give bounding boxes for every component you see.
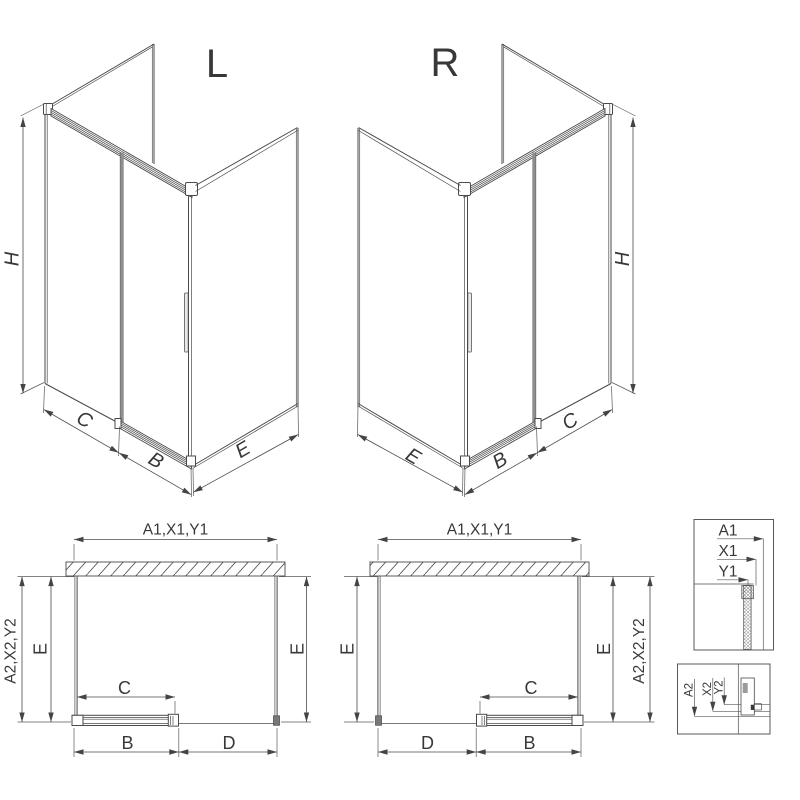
front-fixed-glass	[538, 114, 612, 423]
door-end-profile	[477, 714, 487, 726]
detail-box-adjustment-a2: A2 X2 Y2	[678, 664, 771, 734]
dim-label-e-left-plan-left: E	[31, 643, 51, 655]
left-side-panel	[48, 44, 154, 164]
shower-enclosure-technical-drawing: L	[0, 0, 800, 800]
bottom-corner-bracket	[187, 456, 196, 466]
profile-collar	[742, 586, 754, 599]
dim-label-h-right: H	[612, 251, 634, 266]
sliding-door-plan	[72, 714, 179, 726]
variant-label-right: R	[431, 41, 460, 85]
dim-label-a2-plan-left: A2,X2,Y2	[3, 618, 20, 684]
detail-frame	[678, 664, 771, 734]
right-side-glass-panel	[502, 44, 608, 164]
dim-label-e-right-plan-left: E	[287, 643, 307, 655]
dim-label-e-left-plan-right: E	[337, 643, 357, 655]
diagram-canvas: L	[0, 0, 800, 800]
detail-label-y1: Y1	[719, 564, 738, 581]
dim-label-a1-plan-left: A1,X1,Y1	[143, 522, 209, 539]
dim-label-a1-plan-right: A1,X1,Y1	[447, 522, 513, 539]
dim-label-b-plan-right: B	[523, 733, 535, 753]
dim-label-c-plan-left: C	[118, 678, 131, 698]
front-fixed-glass	[45, 114, 119, 423]
dimensions-right-view: H C B E	[358, 105, 636, 498]
detail-label-a1: A1	[719, 523, 738, 540]
dim-label-a2-plan-right: A2,X2,Y2	[631, 618, 648, 684]
bottom-corner-bracket	[461, 456, 470, 466]
sliding-door-panel	[468, 153, 536, 425]
dim-label-d-plan-right: D	[421, 733, 434, 753]
wall-hatched	[66, 562, 285, 576]
door-handle	[185, 293, 189, 352]
detail-box-adjustment-a1: A1 X1 Y1	[694, 520, 774, 651]
iso-view-left-variant: L	[2, 42, 299, 497]
dim-label-b-plan-left: B	[121, 733, 133, 753]
variant-label-left: L	[206, 42, 228, 86]
detail-label-a2: A2	[684, 683, 696, 697]
detail-label-x1: X1	[719, 543, 738, 560]
panel-end-cap	[274, 716, 280, 726]
dim-label-e-right: E	[402, 444, 425, 470]
bottom-rail-end-cap	[115, 419, 121, 429]
dim-label-c-right: C	[558, 408, 582, 435]
detail-label-x2: X2	[702, 682, 714, 696]
glass-panels-plan	[74, 576, 280, 725]
door-end-profile	[168, 714, 178, 726]
iso-view-right-variant: R	[358, 41, 636, 497]
bottom-rail-end-cap	[535, 419, 541, 429]
rail-corner-bracket	[459, 183, 471, 196]
left-return-panel	[358, 128, 464, 469]
dim-label-d-plan-left: D	[223, 733, 236, 753]
plan-view-right-variant: A1,X1,Y1 C D B	[337, 522, 654, 758]
right-side-panel	[193, 128, 299, 469]
panel-end-cap	[376, 716, 382, 726]
dim-label-h-left: H	[2, 251, 24, 266]
sliding-door-plan	[477, 714, 584, 726]
sliding-door-panel	[120, 153, 188, 425]
dim-label-c-left: C	[72, 407, 96, 434]
wall-hatched	[370, 562, 589, 576]
plan-view-left-variant: A1,X1,Y1 C B D	[3, 522, 312, 758]
dim-label-e-right-plan-right: E	[594, 643, 614, 655]
rail-corner-bracket	[186, 183, 198, 196]
glass-panels-plan	[376, 576, 582, 725]
dim-label-c-plan-right: C	[525, 678, 538, 698]
door-handle	[468, 293, 472, 352]
